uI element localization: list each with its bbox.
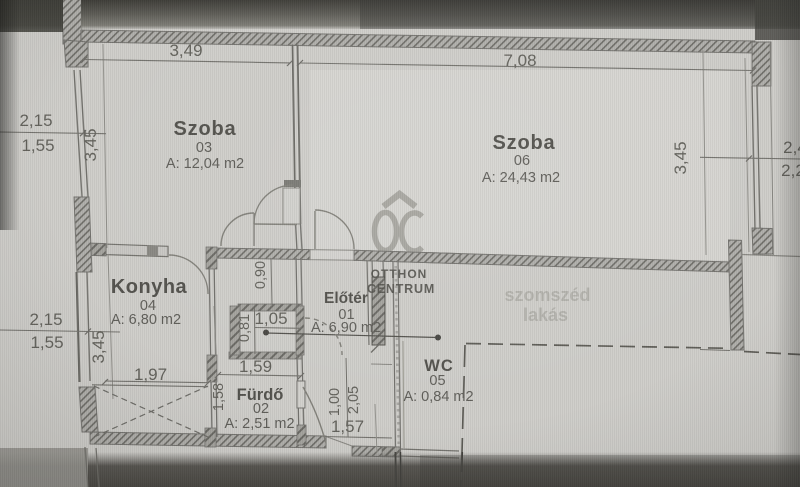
svg-text:06: 06: [514, 153, 530, 169]
svg-text:1,97: 1,97: [134, 365, 167, 384]
svg-text:3,45: 3,45: [81, 128, 100, 161]
svg-text:Szoba: Szoba: [493, 132, 556, 154]
svg-text:3,49: 3,49: [169, 41, 202, 60]
svg-text:OTTHON: OTTHON: [371, 267, 428, 281]
svg-text:Előtér: Előtér: [324, 290, 368, 307]
svg-text:A: 12,04 m2: A: 12,04 m2: [166, 156, 244, 172]
svg-text:1,55: 1,55: [30, 333, 63, 352]
svg-text:A: 24,43 m2: A: 24,43 m2: [482, 170, 560, 186]
svg-text:7,08: 7,08: [503, 51, 536, 70]
svg-text:2,15: 2,15: [19, 111, 52, 130]
svg-text:CENTRUM: CENTRUM: [367, 282, 435, 296]
svg-text:3,45: 3,45: [671, 141, 690, 174]
svg-text:2,15: 2,15: [29, 310, 62, 329]
svg-text:02: 02: [253, 401, 269, 417]
svg-text:03: 03: [196, 140, 212, 156]
svg-text:A: 0,84 m2: A: 0,84 m2: [403, 389, 473, 405]
svg-text:A: 6,90 m2: A: 6,90 m2: [311, 320, 381, 336]
svg-text:05: 05: [429, 373, 445, 389]
svg-text:1,59: 1,59: [239, 357, 272, 376]
svg-text:1,58: 1,58: [211, 383, 227, 411]
svg-text:A: 2,51 m2: A: 2,51 m2: [224, 416, 294, 432]
svg-text:1,00: 1,00: [327, 388, 343, 416]
svg-text:1,57: 1,57: [331, 417, 364, 436]
svg-text:3,45: 3,45: [89, 330, 108, 363]
svg-text:Konyha: Konyha: [111, 276, 188, 298]
svg-text:A: 6,80 m2: A: 6,80 m2: [111, 312, 181, 328]
svg-text:1,55: 1,55: [21, 136, 54, 155]
svg-text:Szoba: Szoba: [174, 118, 237, 140]
svg-text:1,05: 1,05: [254, 309, 287, 328]
svg-text:szomszéd: szomszéd: [504, 285, 590, 305]
svg-text:2,05: 2,05: [346, 386, 362, 414]
svg-text:0,81: 0,81: [237, 314, 253, 342]
svg-text:0,90: 0,90: [253, 261, 269, 289]
svg-text:lakás: lakás: [523, 305, 568, 325]
